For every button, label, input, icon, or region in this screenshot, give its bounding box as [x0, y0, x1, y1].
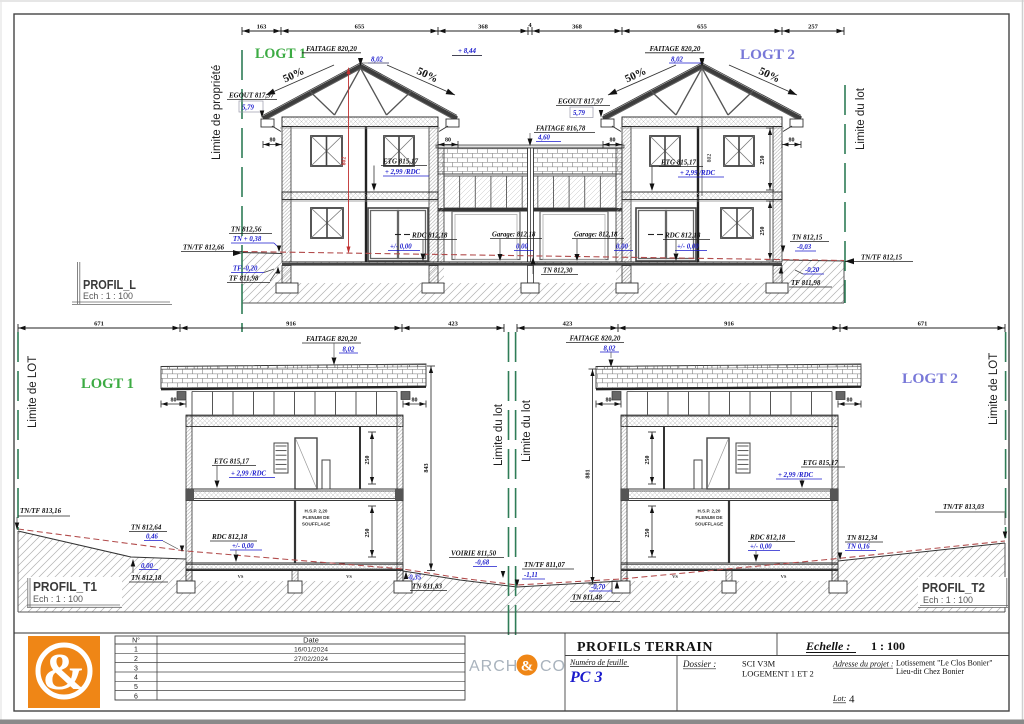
svg-text:8,02: 8,02 — [671, 57, 683, 64]
svg-text:EGOUT 817,97: EGOUT 817,97 — [228, 92, 275, 100]
svg-text:0,00: 0,00 — [616, 244, 628, 251]
svg-text:250: 250 — [645, 529, 651, 538]
svg-text:368: 368 — [478, 24, 489, 31]
svg-text:LOGT 1: LOGT 1 — [81, 376, 134, 392]
svg-text:5,79: 5,79 — [573, 110, 585, 117]
svg-text:PLENUM DE: PLENUM DE — [302, 515, 329, 520]
svg-text:TN 811,83: TN 811,83 — [412, 583, 442, 591]
svg-text:TN 812,15: TN 812,15 — [792, 234, 823, 242]
svg-text:1 : 100: 1 : 100 — [871, 639, 905, 653]
svg-text:27/02/2024: 27/02/2024 — [294, 656, 328, 663]
svg-text:Limite du lot: Limite du lot — [855, 87, 867, 150]
svg-text:-0,68: -0,68 — [475, 560, 490, 567]
svg-text:Lieu-dit Chez Bonier: Lieu-dit Chez Bonier — [896, 667, 964, 676]
svg-text:RDC 812,18: RDC 812,18 — [411, 232, 448, 240]
svg-text:0,46: 0,46 — [146, 534, 158, 541]
svg-text:LOGT 2: LOGT 2 — [740, 47, 795, 63]
svg-text:VS: VS — [238, 574, 244, 579]
svg-text:163: 163 — [257, 24, 268, 31]
svg-text:Limite de propriété: Limite de propriété — [211, 65, 223, 160]
svg-text:250: 250 — [365, 456, 371, 465]
svg-text:TN 0,16: TN 0,16 — [847, 544, 870, 551]
svg-text:250: 250 — [645, 456, 651, 465]
svg-text:2: 2 — [134, 656, 138, 663]
svg-text:+ 2,99 /RDC: + 2,99 /RDC — [231, 471, 266, 478]
svg-text:80: 80 — [412, 398, 418, 404]
svg-text:80: 80 — [789, 138, 795, 144]
svg-text:8,02: 8,02 — [371, 57, 383, 64]
svg-text:RDC 812,18: RDC 812,18 — [211, 533, 248, 541]
svg-text:257: 257 — [808, 24, 819, 31]
svg-text:VS: VS — [672, 574, 678, 579]
svg-text:PROFIL_T2: PROFIL_T2 — [922, 581, 985, 595]
svg-text:VOIRIE 811,50: VOIRIE 811,50 — [451, 550, 497, 558]
svg-text:3: 3 — [134, 665, 138, 672]
svg-text:-0,70: -0,70 — [591, 584, 606, 591]
svg-text:FAITAGE 820,20: FAITAGE 820,20 — [650, 45, 701, 53]
svg-text:FAITAGE 816,78: FAITAGE 816,78 — [536, 126, 586, 133]
svg-text:SOUFFLAGE: SOUFFLAGE — [695, 522, 723, 527]
svg-text:916: 916 — [286, 321, 297, 328]
svg-text:ETG 815,17: ETG 815,17 — [802, 459, 839, 467]
svg-text:TN/TF 813,03: TN/TF 813,03 — [943, 503, 985, 511]
svg-text:TN 811,48: TN 811,48 — [572, 594, 602, 602]
svg-text:Limite du lot: Limite du lot — [521, 399, 533, 462]
svg-text:ARCHI: ARCHI — [469, 658, 524, 675]
svg-text:80: 80 — [610, 138, 616, 144]
svg-text:VS: VS — [346, 574, 352, 579]
svg-text:TN/TF 812,15: TN/TF 812,15 — [861, 254, 903, 262]
svg-text:Echelle :: Echelle : — [805, 639, 850, 653]
svg-text:671: 671 — [94, 321, 104, 328]
svg-text:250: 250 — [760, 156, 766, 165]
svg-text:Ech : 1 : 100: Ech : 1 : 100 — [83, 291, 133, 301]
svg-text:TN 812,30: TN 812,30 — [543, 268, 573, 275]
svg-text:TF -0,20: TF -0,20 — [233, 266, 258, 273]
svg-text:6: 6 — [134, 693, 138, 700]
svg-text:TN 812,18: TN 812,18 — [131, 574, 162, 582]
svg-text:655: 655 — [697, 24, 708, 31]
svg-text:Limite du lot: Limite du lot — [493, 403, 505, 466]
svg-text:+/- 0,00: +/- 0,00 — [750, 544, 772, 551]
svg-text:-0,35: -0,35 — [407, 575, 422, 582]
svg-text:80: 80 — [270, 138, 276, 144]
svg-text:5,79: 5,79 — [242, 105, 254, 112]
svg-text:802: 802 — [342, 157, 348, 166]
svg-text:80: 80 — [171, 398, 177, 404]
svg-text:SCI V3M: SCI V3M — [742, 659, 776, 669]
svg-text:FAITAGE 820,20: FAITAGE 820,20 — [570, 335, 621, 343]
svg-text:LOGT 2: LOGT 2 — [902, 371, 958, 387]
svg-text:H.S.P. 2,20: H.S.P. 2,20 — [305, 509, 328, 514]
svg-text:-0,03: -0,03 — [797, 244, 812, 251]
svg-text:VS: VS — [781, 574, 787, 579]
svg-text:80: 80 — [847, 398, 853, 404]
svg-text:Ech : 1 : 100: Ech : 1 : 100 — [923, 595, 973, 605]
svg-text:Adresse du projet :: Adresse du projet : — [832, 660, 894, 669]
svg-text:671: 671 — [918, 321, 928, 328]
svg-text:+/- 0,00: +/- 0,00 — [677, 244, 699, 251]
svg-text:EGOUT 817,97: EGOUT 817,97 — [557, 98, 604, 106]
svg-text:802: 802 — [707, 154, 713, 163]
svg-text:ETG 815,17: ETG 815,17 — [213, 458, 250, 466]
svg-text:423: 423 — [448, 321, 459, 328]
svg-text:TN 812,56: TN 812,56 — [231, 226, 262, 234]
svg-text:FAITAGE 820,20: FAITAGE 820,20 — [306, 335, 357, 343]
svg-text:LOGEMENT 1 ET 2: LOGEMENT 1 ET 2 — [742, 669, 814, 679]
svg-text:TN/TF 812,66: TN/TF 812,66 — [183, 244, 225, 252]
svg-text:+ 2,99 /RDC: + 2,99 /RDC — [385, 169, 420, 176]
svg-text:16/01/2024: 16/01/2024 — [294, 647, 328, 654]
svg-text:4: 4 — [134, 675, 138, 682]
svg-text:+/- 0,00: +/- 0,00 — [232, 543, 254, 550]
svg-text:Date: Date — [303, 636, 319, 645]
svg-text:+ 8,44: + 8,44 — [458, 47, 476, 55]
svg-text:Numéro de feuille: Numéro de feuille — [569, 658, 627, 667]
svg-text:423: 423 — [563, 321, 574, 328]
svg-text:Limite de LOT: Limite de LOT — [27, 356, 39, 428]
svg-text:ETG 815,17: ETG 815,17 — [660, 159, 697, 167]
svg-text:Garage: 812,18: Garage: 812,18 — [574, 232, 618, 239]
svg-text:80: 80 — [445, 138, 451, 144]
svg-text:TF 811,98: TF 811,98 — [229, 275, 259, 283]
svg-text:PLENUM DE: PLENUM DE — [695, 515, 722, 520]
svg-text:655: 655 — [355, 24, 366, 31]
svg-text:N°: N° — [132, 637, 140, 645]
svg-text:Limite de LOT: Limite de LOT — [988, 353, 1000, 425]
svg-text:TN + 0,38: TN + 0,38 — [233, 236, 262, 243]
svg-text:Ech : 1 : 100: Ech : 1 : 100 — [33, 594, 83, 604]
svg-text:250: 250 — [365, 529, 371, 538]
svg-text:881: 881 — [585, 469, 592, 478]
svg-text:Garage: 812,18: Garage: 812,18 — [492, 232, 536, 239]
svg-text:TN/TF 811,07: TN/TF 811,07 — [524, 561, 565, 569]
svg-text:250: 250 — [760, 227, 766, 236]
svg-text:&: & — [42, 644, 85, 701]
svg-text:LOGT 1: LOGT 1 — [255, 46, 306, 62]
svg-text:8,02: 8,02 — [343, 347, 355, 354]
svg-text:+ 2,99 /RDC: + 2,99 /RDC — [778, 472, 813, 479]
svg-text:-1,11: -1,11 — [524, 572, 538, 579]
svg-text:Dossier :: Dossier : — [682, 659, 716, 669]
svg-text:ETG 815,17: ETG 815,17 — [382, 158, 419, 166]
svg-text:PROFIL_T1: PROFIL_T1 — [33, 580, 97, 594]
svg-text:TN 812,64: TN 812,64 — [131, 524, 162, 532]
svg-text:SOUFFLAGE: SOUFFLAGE — [302, 522, 330, 527]
svg-text:RDC 812,18: RDC 812,18 — [664, 232, 701, 240]
svg-text:916: 916 — [724, 321, 735, 328]
svg-text:0,00: 0,00 — [141, 563, 153, 570]
svg-text:&: & — [521, 659, 534, 675]
svg-text:RDC 812,18: RDC 812,18 — [749, 534, 786, 542]
svg-text:1: 1 — [134, 647, 138, 654]
svg-text:-0,20: -0,20 — [805, 267, 820, 274]
svg-text:368: 368 — [572, 24, 583, 31]
svg-text:5: 5 — [134, 684, 138, 691]
svg-text:TN 812,34: TN 812,34 — [847, 534, 878, 542]
svg-text:0,00: 0,00 — [516, 244, 528, 251]
svg-text:PROFILS TERRAIN: PROFILS TERRAIN — [577, 640, 713, 655]
svg-text:+ 2,99 /RDC: + 2,99 /RDC — [680, 170, 715, 177]
svg-text:H.S.P. 2,20: H.S.P. 2,20 — [698, 509, 721, 514]
svg-text:TN/TF 813,16: TN/TF 813,16 — [20, 507, 62, 515]
svg-text:FAITAGE 820,20: FAITAGE 820,20 — [306, 45, 357, 53]
svg-text:+/- 0,00: +/- 0,00 — [390, 244, 412, 251]
svg-text:4: 4 — [849, 694, 855, 706]
svg-text:8,02: 8,02 — [604, 346, 616, 353]
svg-text:PROFIL_L: PROFIL_L — [83, 278, 136, 292]
svg-text:843: 843 — [423, 463, 430, 472]
svg-text:80: 80 — [606, 398, 612, 404]
svg-text:CO: CO — [540, 658, 566, 675]
svg-text:TF 811,98: TF 811,98 — [791, 279, 821, 287]
svg-text:PC 3: PC 3 — [569, 669, 602, 686]
svg-text:Lot:: Lot: — [832, 694, 847, 703]
svg-text:4,60: 4,60 — [537, 135, 550, 142]
